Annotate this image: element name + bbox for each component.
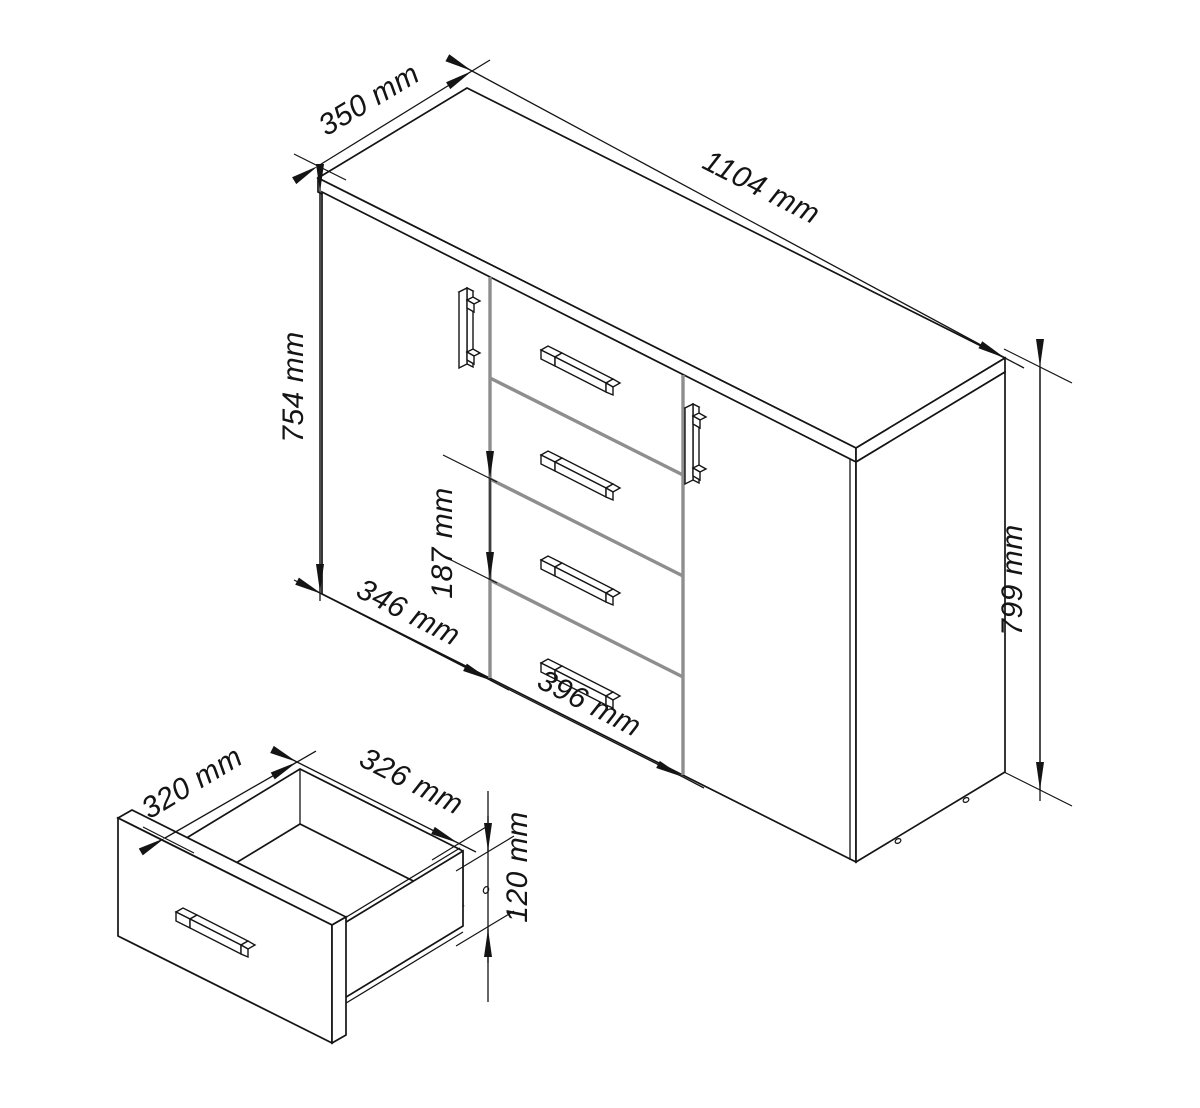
dim-label-drawer-side-height: 120 mm [501, 811, 534, 922]
dim-label-drawer-inner-width: 326 mm [354, 742, 468, 822]
dim-label-drawer-front-height: 187 mm [426, 487, 459, 598]
extension-line [1004, 772, 1072, 806]
dim-label-door-height: 754 mm [277, 331, 310, 442]
dimension-drawer-side-height: 120 mm [456, 791, 534, 1002]
dim-label-cabinet-height: 799 mm [996, 524, 1029, 635]
extension-line [454, 61, 472, 71]
technical-drawing-canvas: 350 mm 1104 mm 754 mm 187 mm 346 mm 396 … [0, 0, 1200, 1108]
technical-drawing-page: 350 mm 1104 mm 754 mm 187 mm 346 mm 396 … [0, 0, 1200, 1108]
extension-line [1005, 358, 1024, 368]
extension-line [278, 752, 297, 762]
dimension-cabinet-height: 799 mm [996, 349, 1072, 806]
cabinet-view [318, 88, 1005, 862]
extension-line [297, 751, 316, 762]
extension-line [1004, 349, 1072, 383]
extension-line [302, 584, 322, 594]
dim-label-drawer-inner-depth: 320 mm [136, 740, 248, 826]
extension-line [472, 60, 490, 71]
drawer-front-right-edge [332, 917, 346, 1043]
